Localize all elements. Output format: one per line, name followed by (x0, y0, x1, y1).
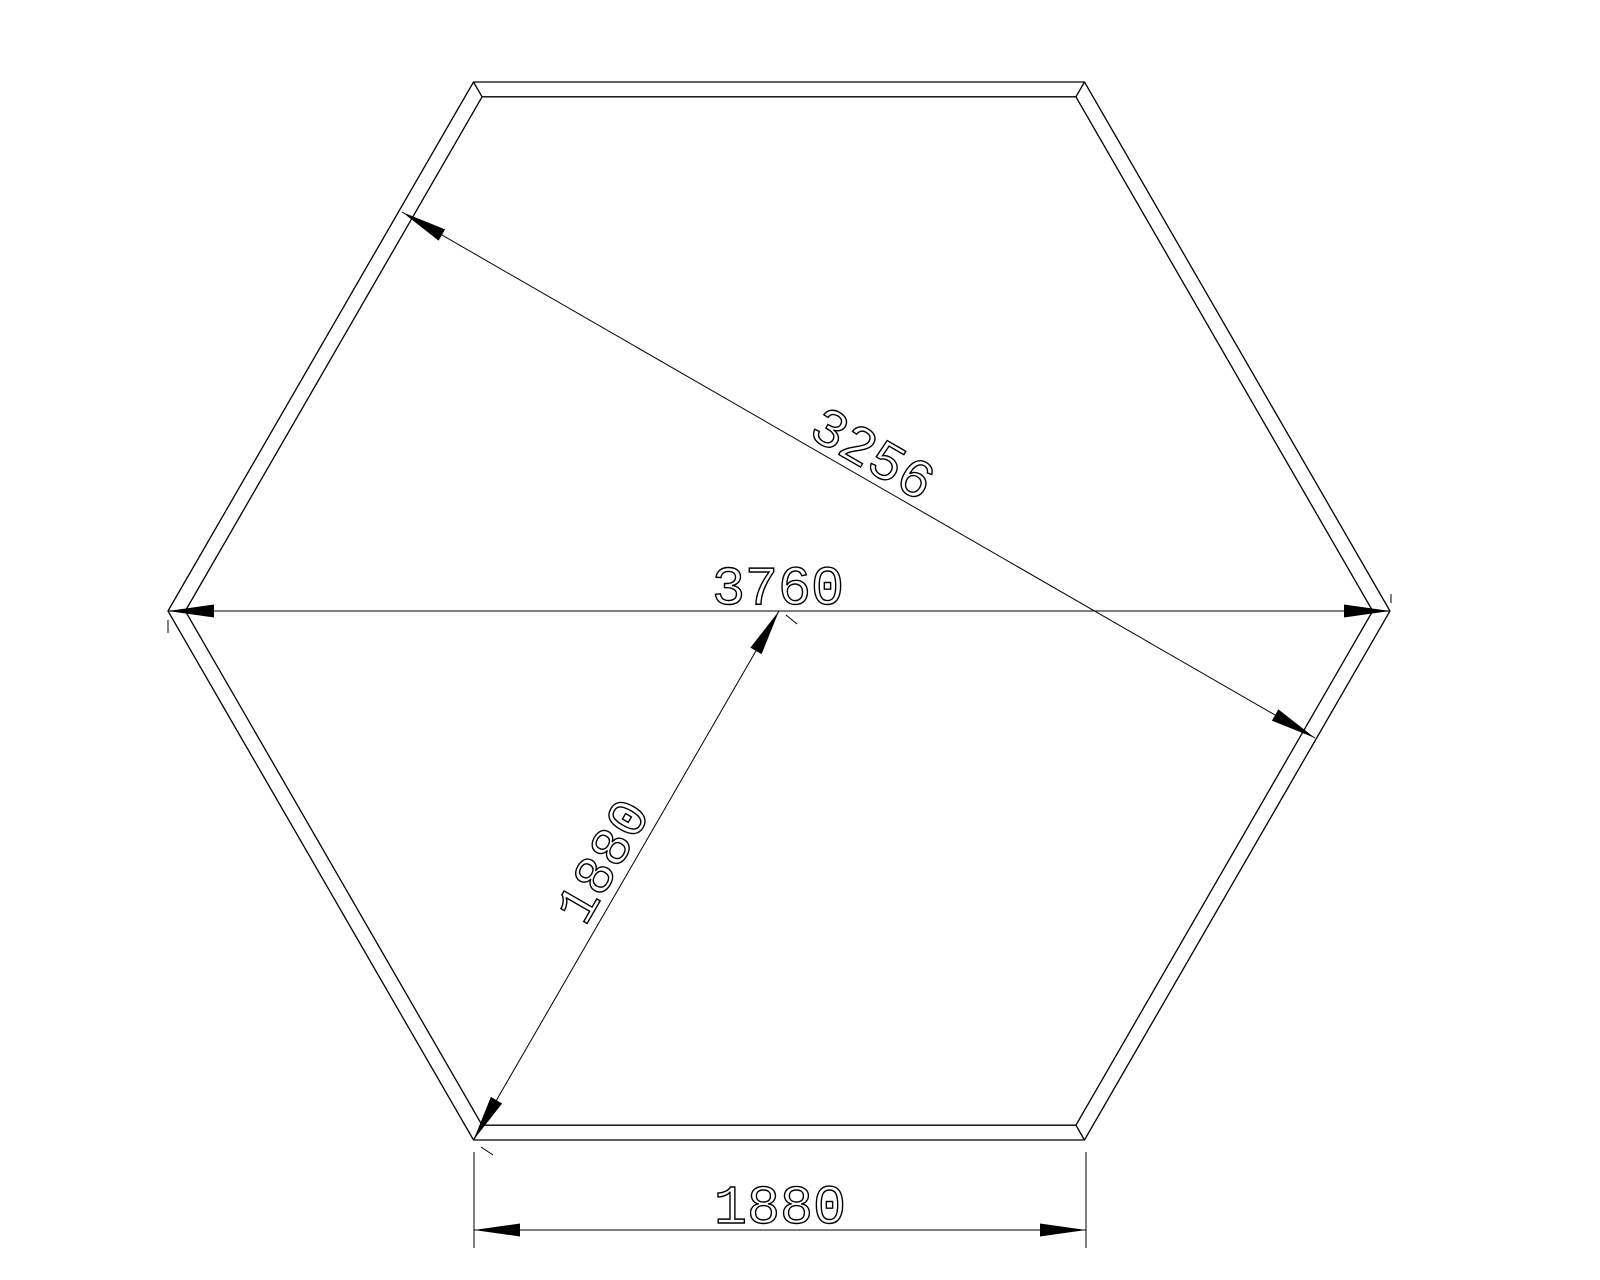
hexagon-dimension-drawing: 3760 3256 1880 1880 (0, 0, 1600, 1280)
dim-bottom-side-label: 1880 (714, 1177, 846, 1240)
dim-across-flats-arrow-top (402, 212, 445, 241)
corner-seam-line (1076, 1125, 1085, 1140)
dim-width-arrow-right (1344, 605, 1390, 618)
corner-seam-line (474, 82, 483, 97)
corner-seam-line (1076, 82, 1085, 97)
drawing-canvas: 3760 3256 1880 1880 (0, 0, 1600, 1280)
dim-bottom-arrow-left (474, 1224, 520, 1237)
dim-bottom-arrow-right (1040, 1224, 1086, 1237)
dim-width-label: 3760 (712, 558, 844, 621)
dim-radius-extension-tick-vertex (481, 1147, 493, 1155)
dim-width-arrow-left (168, 605, 214, 618)
dim-across-flats-arrow-bottom (1272, 709, 1315, 738)
dim-radius-label: 1880 (545, 790, 666, 936)
dim-across-flats-label: 3256 (798, 396, 944, 517)
